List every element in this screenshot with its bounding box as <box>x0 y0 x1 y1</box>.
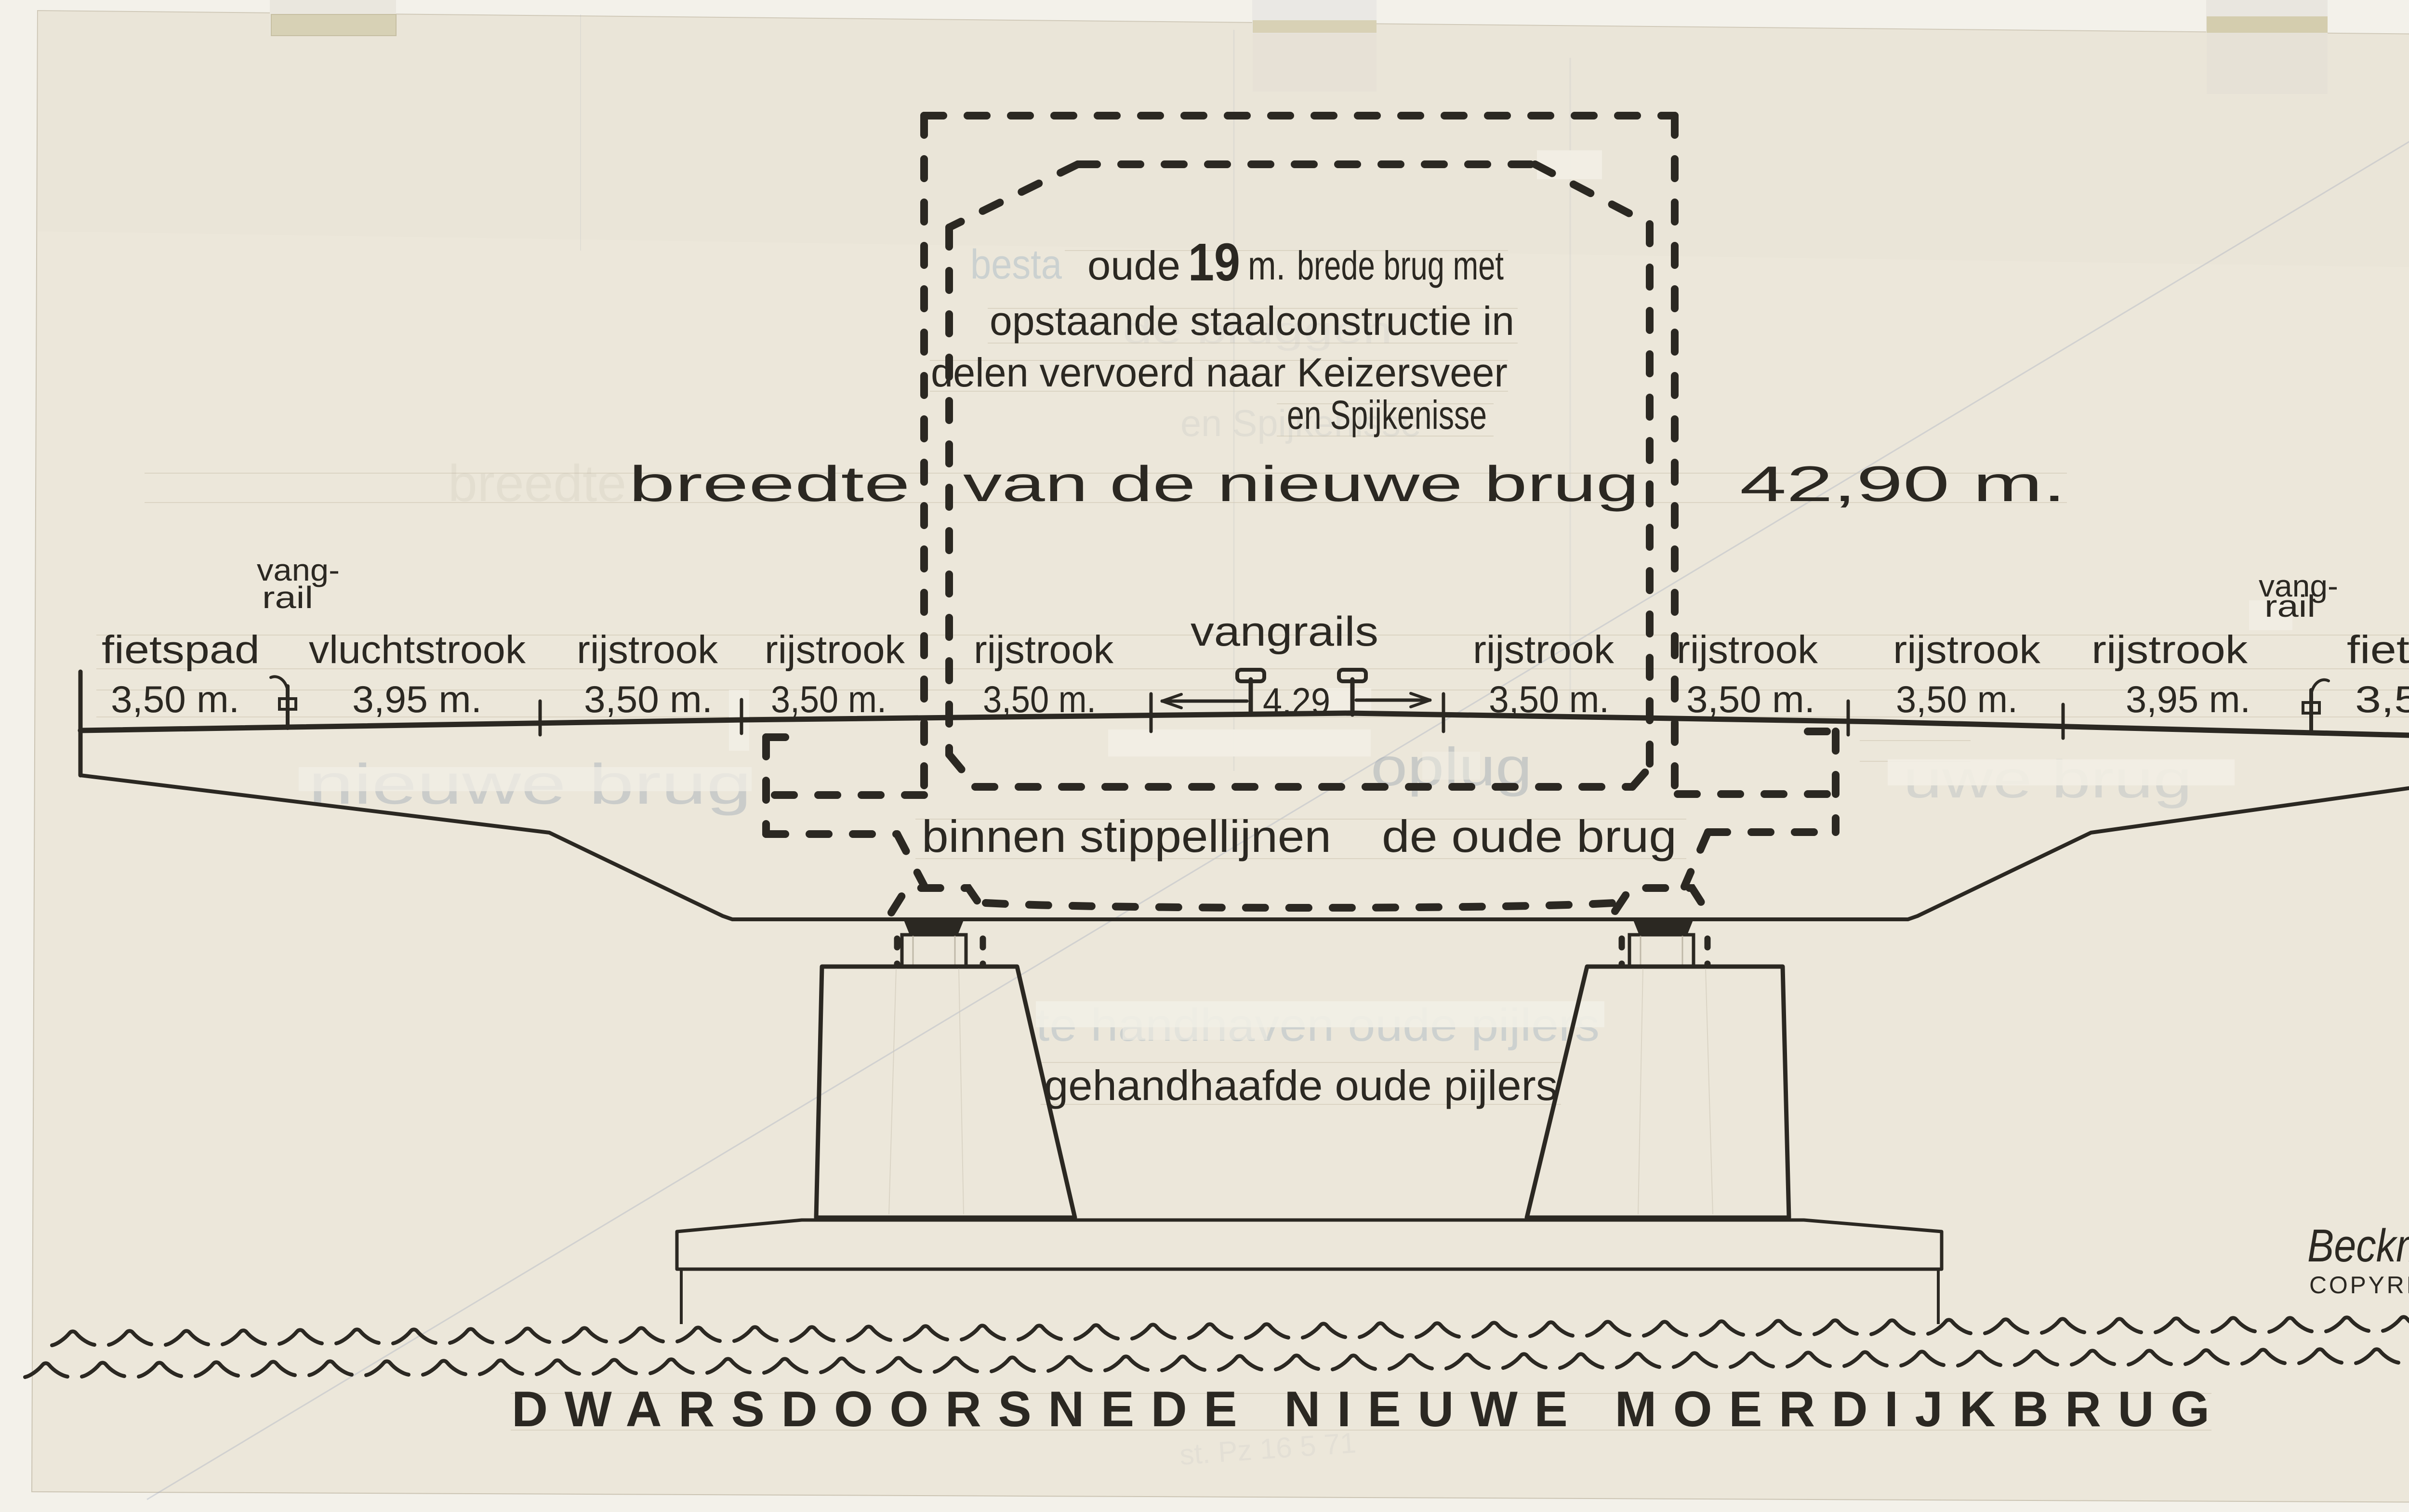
svg-text:delen vervoerd naar Keizersve: delen vervoerd naar Keizersveer <box>931 350 1508 395</box>
svg-text:3,50 m.: 3,50 m. <box>983 678 1096 720</box>
svg-text:breedte: breedte <box>629 456 910 512</box>
svg-text:opstaande staalconstructie in: opstaande staalconstructie in <box>990 298 1514 344</box>
svg-text:vluchtstrook: vluchtstrook <box>309 628 526 672</box>
svg-text:vangrails: vangrails <box>1191 609 1378 655</box>
svg-text:COPYRIGHT: COPYRIGHT <box>2309 1272 2409 1299</box>
svg-text:rijstrook: rijstrook <box>1473 628 1615 672</box>
svg-text:gehandhaafde oude pijlers: gehandhaafde oude pijlers <box>1044 1061 1558 1109</box>
svg-text:fietspad: fietspad <box>102 628 260 672</box>
svg-text:3,95 m.: 3,95 m. <box>352 678 482 720</box>
svg-text:en Spijkenisse: en Spijkenisse <box>1287 392 1487 438</box>
svg-text:breedte: breedte <box>448 454 626 512</box>
svg-text:rijstrook: rijstrook <box>577 628 718 672</box>
svg-text:3,50 m.: 3,50 m. <box>584 678 713 720</box>
svg-text:rijstrook: rijstrook <box>2091 628 2248 672</box>
svg-text:m.: m. <box>1248 243 1285 288</box>
svg-text:van de nieuwe brug: van de nieuwe brug <box>963 456 1639 512</box>
svg-text:rijstrook: rijstrook <box>765 628 905 672</box>
svg-text:rail: rail <box>262 580 313 615</box>
svg-text:3,50 m.: 3,50 m. <box>2355 678 2409 720</box>
svg-text:rijstrook: rijstrook <box>974 628 1114 672</box>
svg-text:19: 19 <box>1188 233 1240 292</box>
svg-text:3,50 m.: 3,50 m. <box>111 678 239 720</box>
svg-text:brede brug met: brede brug met <box>1297 243 1504 288</box>
svg-text:de oude brug: de oude brug <box>1382 811 1677 862</box>
svg-text:3,95 m.: 3,95 m. <box>2126 678 2250 720</box>
svg-text:3,50 m.: 3,50 m. <box>1896 678 2018 720</box>
svg-text:Beckman: Beckman <box>2307 1220 2409 1272</box>
svg-text:rijstrook: rijstrook <box>1677 628 1818 672</box>
svg-text:42,90 m.: 42,90 m. <box>1740 456 2066 512</box>
svg-text:oude: oude <box>1087 243 1180 288</box>
svg-text:binnen stippellijnen: binnen stippellijnen <box>922 811 1331 862</box>
svg-text:3,50 m.: 3,50 m. <box>771 678 887 720</box>
svg-text:4.29: 4.29 <box>1263 680 1330 722</box>
svg-text:rijstrook: rijstrook <box>1893 628 2041 672</box>
svg-text:3,50 m.: 3,50 m. <box>1686 678 1815 720</box>
svg-text:fietspad: fietspad <box>2347 628 2409 672</box>
svg-text:besta: besta <box>970 241 1062 288</box>
svg-text:rail: rail <box>2264 589 2316 623</box>
svg-text:3,50 m.: 3,50 m. <box>1489 678 1609 720</box>
